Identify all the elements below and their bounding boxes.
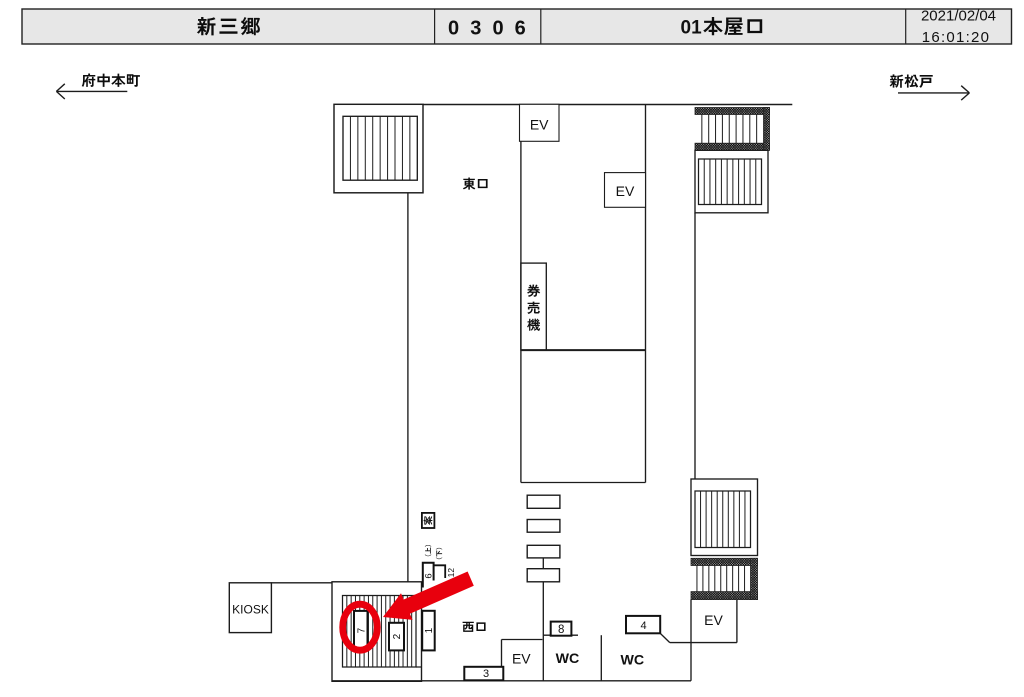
svg-text:EV: EV	[704, 612, 723, 628]
svg-text:WC: WC	[620, 653, 644, 669]
svg-text:EV: EV	[616, 183, 635, 199]
svg-text:6: 6	[424, 573, 435, 578]
svg-text:2021/02/04: 2021/02/04	[921, 7, 996, 24]
svg-text:3: 3	[483, 668, 489, 680]
svg-text:4: 4	[640, 620, 646, 632]
svg-text:8: 8	[558, 624, 564, 636]
svg-text:12: 12	[446, 568, 456, 578]
svg-text:EV: EV	[512, 651, 531, 667]
svg-text:2: 2	[392, 633, 403, 639]
svg-text:01: 01	[681, 18, 703, 39]
svg-text:WC: WC	[556, 651, 580, 667]
svg-text:16:01:20: 16:01:20	[922, 29, 990, 46]
svg-text:EV: EV	[530, 117, 549, 133]
svg-text:0306: 0306	[448, 18, 537, 40]
svg-text:7: 7	[356, 627, 367, 633]
svg-text:KIOSK: KIOSK	[232, 602, 269, 616]
svg-text:1: 1	[424, 627, 435, 633]
